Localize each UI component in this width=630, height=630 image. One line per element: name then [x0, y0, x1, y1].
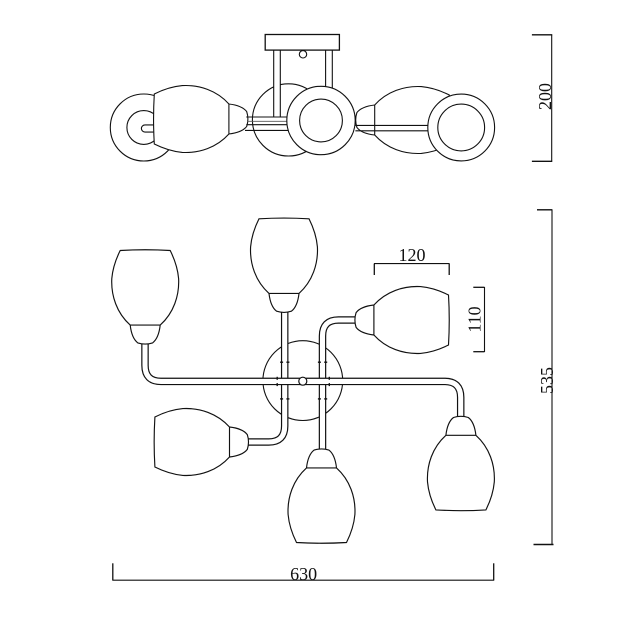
svg-text:535: 535 [537, 367, 557, 394]
svg-text:120: 120 [399, 245, 426, 265]
svg-text:630: 630 [290, 564, 317, 584]
svg-text:110: 110 [465, 306, 485, 332]
svg-text:200: 200 [535, 83, 555, 110]
